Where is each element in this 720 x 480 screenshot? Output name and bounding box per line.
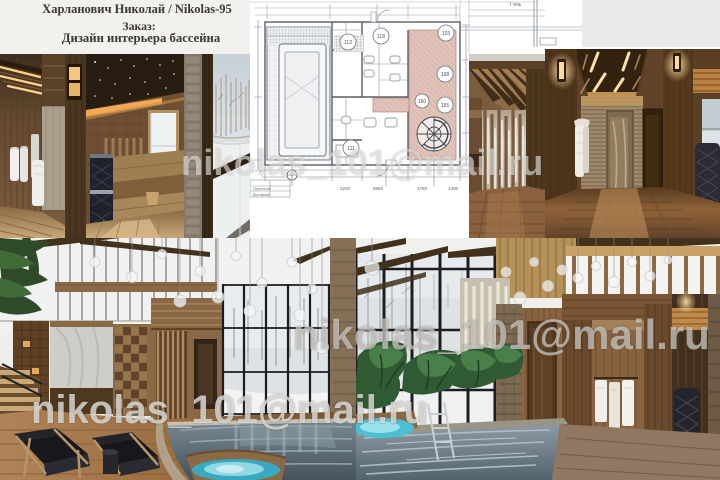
svg-text:112: 112 <box>344 40 352 46</box>
svg-text:108: 108 <box>441 72 450 78</box>
svg-text:9850: 9850 <box>373 186 384 191</box>
svg-text:165: 165 <box>441 103 450 109</box>
svg-text:160: 160 <box>418 99 427 105</box>
svg-text:2750: 2750 <box>417 186 428 191</box>
svg-text:Приточная: Приточная <box>253 187 271 191</box>
svg-text:3200: 3200 <box>340 186 351 191</box>
svg-text:1400: 1400 <box>448 186 459 191</box>
svg-text:Гчмь: Гчмь <box>510 2 522 8</box>
svg-text:118: 118 <box>377 34 385 40</box>
svg-text:103: 103 <box>442 31 451 37</box>
svg-text:Вытяжная: Вытяжная <box>253 193 270 197</box>
